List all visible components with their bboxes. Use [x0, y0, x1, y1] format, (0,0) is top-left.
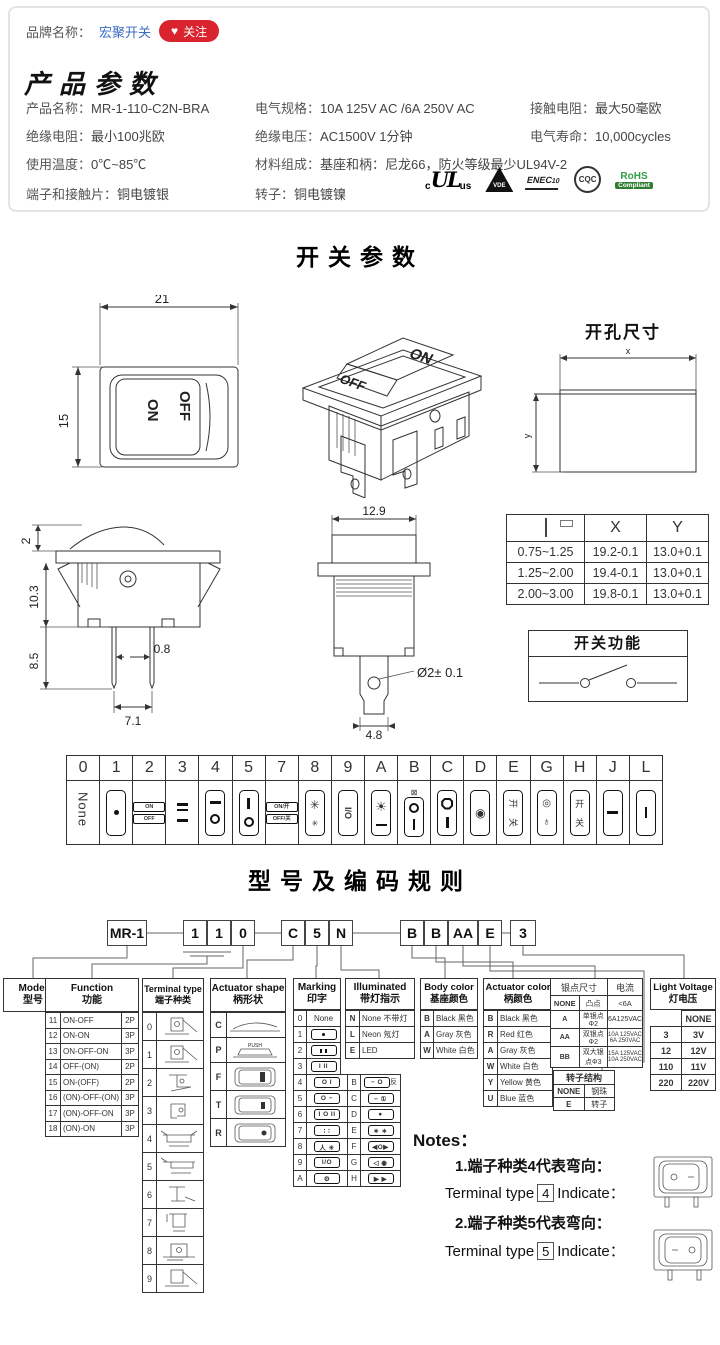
cell: NONE [682, 1011, 716, 1027]
cell: 7 [143, 1209, 157, 1237]
cell: G [348, 1155, 361, 1171]
svg-text:x: x [626, 346, 631, 356]
mark-dot-chip [307, 1027, 341, 1043]
cell: LED [360, 1043, 415, 1059]
cell: 3P [122, 1028, 139, 1044]
spec-label: 绝缘电压： [255, 129, 320, 144]
marking-bars [166, 781, 199, 845]
cell: 7 [294, 1123, 307, 1139]
cell: 220 [651, 1075, 682, 1091]
spec-label: 绝缘电阻： [26, 129, 91, 144]
spst-symbol [529, 657, 687, 701]
cell: White 白色 [498, 1059, 553, 1075]
cell: Y [647, 515, 709, 542]
cell: 4 [199, 756, 232, 781]
spec-value: 最小100兆欧 [91, 129, 165, 144]
function-header: Function功能 [45, 978, 139, 1012]
certification-logos: cULus VDE ENEC10 CQC RoHS Compliant [425, 166, 653, 193]
cell: L [346, 1027, 360, 1043]
code-light-voltage: 3 [510, 920, 536, 946]
terminal-type-5-switch-drawing [652, 1228, 716, 1284]
bulb-icon: ☀ [364, 781, 397, 845]
code-marking: 5 [305, 920, 329, 946]
mark-i-ii-chip: I II [307, 1059, 341, 1075]
cell: 0 [67, 756, 100, 781]
spec-label: 电气寿命： [530, 129, 595, 144]
cell: R [484, 1027, 498, 1043]
lamp-icon: ◎♁ [530, 781, 563, 845]
note-line-4: Terminal type5Indicate： [445, 1240, 625, 1261]
cell: ON-(OFF) [61, 1075, 122, 1091]
label: Terminal type [144, 984, 202, 995]
panel-thickness-icon [545, 518, 547, 537]
label: 基座颜色 [430, 994, 468, 1006]
marking-dot [100, 781, 133, 845]
cell: 110 [651, 1059, 682, 1075]
cell: 转子结构 [554, 1071, 615, 1085]
marking-dash [596, 781, 629, 845]
actuator-color-table: BBlack 黑色 RRed 红色 AGray 灰色 WWhite 白色 YYe… [483, 1010, 553, 1107]
cell: 凸点 [579, 996, 608, 1011]
fan-icon: ✳✳ [298, 781, 331, 845]
label: Function [71, 983, 113, 996]
marking-i-circle [232, 781, 265, 845]
cell: Blue 蓝色 [498, 1091, 553, 1107]
cell: A [294, 1171, 307, 1187]
label: Indicate： [557, 1185, 625, 1202]
svg-text:8.5: 8.5 [27, 652, 41, 669]
cell: A [421, 1027, 434, 1043]
cell: A [484, 1043, 498, 1059]
switch-function-box: 开关功能 [528, 630, 688, 702]
cell: H [348, 1171, 361, 1187]
marking-circle-bar: ⊠ [398, 781, 431, 845]
shape-r-icon [227, 1119, 286, 1147]
terminal-type-table: 0 1 2 3 4 5 6 7 8 9 [142, 1012, 204, 1293]
cell: 11 [46, 1013, 61, 1029]
cell: 转子 [584, 1098, 615, 1111]
cell: 19.4-0.1 [585, 563, 647, 584]
marking-code-table: 012345789ABCDEGHJL None ONOFF ON/开OFF/关 … [66, 755, 663, 845]
cell: 人 ✳ [307, 1139, 348, 1155]
spec-label: 产品名称： [26, 101, 91, 116]
terminal-type-4-switch-drawing [652, 1155, 716, 1211]
cell: E [554, 1098, 585, 1111]
light-voltage-table: NONE 33V 1212V 11011V 220220V [650, 1010, 716, 1091]
cell: 9 [331, 756, 364, 781]
cell: 19.8-0.1 [585, 584, 647, 605]
cell: O − [307, 1091, 348, 1107]
cell: P [211, 1038, 227, 1063]
cell: D [464, 756, 497, 781]
marking-io: I/O [331, 781, 364, 845]
marking-wide-table: 4O IB− O反 5O −C− ① 6I O IID● 7∶ ∶E∗ ∗ 8人… [293, 1074, 401, 1187]
cell: Gray 灰色 [498, 1043, 553, 1059]
marking-kai-guan: 开关 [563, 781, 596, 845]
cell: 220V [682, 1075, 716, 1091]
cell: 8 [294, 1139, 307, 1155]
cell: O I [307, 1075, 348, 1091]
cell: C [431, 756, 464, 781]
label: 功能 [82, 995, 102, 1008]
brand-label: 品牌名称： [26, 22, 91, 41]
cell: 9 [294, 1155, 307, 1171]
code-function-1: 1 [183, 920, 207, 946]
cell: B [484, 1011, 498, 1027]
svg-text:10.3: 10.3 [27, 585, 41, 609]
cell: 6A125VAC [608, 1011, 643, 1029]
cell: 3P [122, 1121, 139, 1137]
shape-rocker-icon [227, 1013, 286, 1038]
side-view-drawing: 2 10.3 8.5 0.8 7.1 [12, 505, 242, 730]
cell: 钢珠 [584, 1085, 615, 1098]
cell: 15 [46, 1075, 61, 1091]
cell: 0.75~1.25 [507, 542, 585, 563]
label: Model [19, 983, 48, 996]
body-color-header: Body color基座颜色 [420, 978, 478, 1010]
terminal-drawing-3 [157, 1097, 204, 1125]
cell: 13.0+0.1 [647, 584, 709, 605]
cell: (ON)-OFF-ON [61, 1106, 122, 1122]
cell: 电流 [608, 979, 643, 996]
svg-text:OFF: OFF [176, 391, 193, 421]
cell: B [348, 1075, 361, 1091]
cell: 5 [232, 756, 265, 781]
cell: 12 [651, 1043, 682, 1059]
label: 端子种类 [155, 995, 191, 1006]
cell: W [484, 1059, 498, 1075]
marking-on-kai: ON/开OFF/关 [265, 781, 298, 845]
spec-value: 0℃~85℃ [91, 157, 146, 172]
cell: E [348, 1123, 361, 1139]
spec-value: 铜电镀银 [117, 187, 169, 202]
cell: F [348, 1139, 361, 1155]
label: 灯电压 [669, 994, 698, 1006]
shape-push-icon: PUSH [227, 1038, 286, 1063]
cell: H [563, 756, 596, 781]
cell: N [346, 1011, 360, 1027]
cell: 11V [682, 1059, 716, 1075]
cell: − ① [361, 1091, 401, 1107]
cell: U [484, 1091, 498, 1107]
terminal-type-4-box: 4 [537, 1184, 554, 1202]
cell: 3P [122, 1090, 139, 1106]
marking-ibar [629, 781, 662, 845]
code-rotor: E [478, 920, 502, 946]
cell: 双银点Φ2 [579, 1029, 608, 1047]
svg-text:2: 2 [19, 537, 33, 544]
mark-onoff-chip [307, 1043, 341, 1059]
svg-text:15: 15 [58, 414, 71, 428]
label: 型号 [23, 995, 43, 1008]
cell: ∶ ∶ [307, 1123, 348, 1139]
label: Illuminated [354, 982, 407, 995]
cell: ● [361, 1107, 401, 1123]
label: Actuator shape [212, 983, 285, 996]
cell: 3V [682, 1027, 716, 1043]
switch-function-title: 开关功能 [529, 631, 687, 657]
cell: 3 [143, 1097, 157, 1125]
cell: (ON)-ON [61, 1121, 122, 1137]
code-silver: AA [448, 920, 478, 946]
isometric-view-drawing: ON OFF [285, 288, 500, 498]
cell: C [348, 1091, 361, 1107]
cell: 3P [122, 1044, 139, 1060]
cell: 5 [143, 1153, 157, 1181]
cell: 12 [46, 1028, 61, 1044]
marking-kai-guan-rot: 开关 [497, 781, 530, 845]
marking-small-table: 0None 1 2 3I II [293, 1010, 341, 1075]
cell: T [211, 1091, 227, 1119]
cell: J [596, 756, 629, 781]
shape-t-icon [227, 1091, 286, 1119]
label: Actuator color [486, 982, 551, 994]
cell: I O II [307, 1107, 348, 1123]
cell: 2P [122, 1059, 139, 1075]
cell: 2.00~3.00 [507, 584, 585, 605]
spec-label: 端子和接触片： [26, 187, 117, 202]
cell: 5 [294, 1091, 307, 1107]
actuator-shape-header: Actuator shape柄形状 [210, 978, 286, 1012]
cell: 1 [143, 1041, 157, 1069]
cell: ON-OFF-ON [61, 1044, 122, 1060]
label: Body color [424, 982, 474, 994]
spec-label: 电气规格： [255, 101, 320, 116]
cell: W [421, 1043, 434, 1059]
follow-button[interactable]: ♥关注 [159, 20, 219, 42]
vde-icon: VDE [485, 167, 513, 192]
cell: Black 黑色 [434, 1011, 478, 1027]
cell [651, 1011, 682, 1027]
cell: 4 [143, 1125, 157, 1153]
svg-text:21: 21 [155, 295, 169, 306]
code-illuminated: N [329, 920, 353, 946]
cell: E [497, 756, 530, 781]
note-line-1: 1.端子种类4代表弯向： [455, 1155, 611, 1176]
cell: A [551, 1011, 580, 1029]
actuator-color-header: Actuator color柄颜色 [483, 978, 553, 1010]
label: Terminal type [445, 1243, 534, 1260]
spec-label: 使用温度： [26, 157, 91, 172]
cell: 9 [143, 1265, 157, 1293]
cell: ◁ ◉ [361, 1155, 401, 1171]
cell: 1.25~2.00 [507, 563, 585, 584]
code-model: MR-1 [107, 920, 147, 946]
spec-value: 10A 125V AC /6A 250V AC [320, 101, 475, 116]
terminal-drawing-7 [157, 1209, 204, 1237]
terminal-drawing-2 [157, 1069, 204, 1097]
cell: 8 [143, 1237, 157, 1265]
terminal-drawing-5 [157, 1153, 204, 1181]
cell: Neon 氖灯 [360, 1027, 415, 1043]
shape-f-icon [227, 1063, 286, 1091]
cell: BB [551, 1047, 580, 1068]
cell: AA [551, 1029, 580, 1047]
silver-point-table: 银点尺寸 电流 NONE凸点<6A A单银点Φ26A125VAC AA双银点Φ2… [550, 978, 643, 1068]
cell: 12V [682, 1043, 716, 1059]
terminal-drawing-1 [157, 1041, 204, 1069]
code-function-2: 1 [207, 920, 231, 946]
cell: 2 [133, 756, 166, 781]
function-table: 11ON-OFF2P 12ON-ON3P 13ON-OFF-ON3P 14OFF… [45, 1012, 139, 1137]
label: Indicate： [557, 1243, 625, 1260]
cell: None [307, 1011, 341, 1027]
terminal-drawing-6 [157, 1181, 204, 1209]
code-terminal: 0 [231, 920, 255, 946]
spec-label: 转子： [255, 187, 294, 202]
cell: Red 红色 [498, 1027, 553, 1043]
brand-link[interactable]: 宏聚开关 [99, 22, 151, 41]
notes-title: Notes： [413, 1126, 477, 1151]
cell: 18 [46, 1121, 61, 1137]
actuator-shape-table: C PPUSH F T R [210, 1012, 286, 1147]
cell: NONE [554, 1085, 585, 1098]
spec-value: AC1500V 1分钟 [320, 129, 413, 144]
cell: E [346, 1043, 360, 1059]
cell: ▶ ▶ [361, 1171, 401, 1187]
cell: 13.0+0.1 [647, 563, 709, 584]
cell: 3 [651, 1027, 682, 1043]
svg-text:0.8: 0.8 [154, 642, 171, 656]
note-line-3: 2.端子种类5代表弯向： [455, 1212, 611, 1233]
rohs-icon: RoHS Compliant [615, 171, 653, 189]
cell: 14 [46, 1059, 61, 1075]
spec-value: 10,000cycles [595, 129, 671, 144]
illuminated-table: NNone 不带灯 LNeon 氖灯 ELED [345, 1010, 415, 1059]
cul-us-icon: cULus [425, 167, 471, 192]
cell: 6 [143, 1181, 157, 1209]
cell: Yellow 黄色 [498, 1075, 553, 1091]
cell: ◀O▶ [361, 1139, 401, 1155]
code-actuator-color: B [424, 920, 448, 946]
section-title-switch-params: 开关参数 [0, 238, 720, 272]
cell: Black 黑色 [498, 1011, 553, 1027]
cell: 13 [46, 1044, 61, 1060]
terminal-drawing-8 [157, 1237, 204, 1265]
light-voltage-header: Light Voltage灯电压 [650, 978, 716, 1010]
spec-value: MR-1-110-C2N-BRA [91, 101, 209, 116]
follow-label: 关注 [183, 23, 207, 40]
cell: 2 [294, 1043, 307, 1059]
svg-text:7.1: 7.1 [125, 714, 142, 728]
label: 带灯指示 [360, 994, 400, 1007]
rotor-table: 转子结构 NONE钢珠 E转子 [553, 1070, 615, 1111]
cell: ∗ ∗ [361, 1123, 401, 1139]
marking-header: Marking印字 [293, 978, 341, 1010]
svg-text:PUSH: PUSH [248, 1043, 262, 1049]
cell: Y [484, 1075, 498, 1091]
label: 印字 [307, 994, 327, 1007]
cell: 6 [294, 1107, 307, 1123]
label: Marking [298, 982, 336, 995]
svg-text:12.9: 12.9 [362, 505, 386, 518]
svg-text:4.8: 4.8 [366, 728, 383, 740]
svg-text:y: y [522, 433, 532, 438]
terminal-type-header: Terminal type端子种类 [142, 978, 204, 1012]
cell: 2P [122, 1013, 139, 1029]
spec-label: 材料组成： [255, 157, 320, 172]
cell: 4 [294, 1075, 307, 1091]
section-title-coding-rules: 型号及编码规则 [0, 862, 720, 896]
cell: None 不带灯 [360, 1011, 415, 1027]
cell: 银点尺寸 [551, 979, 608, 996]
marking-on-off: ONOFF [133, 781, 166, 845]
cell: A [364, 756, 397, 781]
cell: ON-OFF [61, 1013, 122, 1029]
label: 柄形状 [233, 995, 263, 1008]
terminal-drawing-0 [157, 1013, 204, 1041]
cell: 2P [122, 1075, 139, 1091]
spec-value: 铜电镀镍 [294, 187, 346, 202]
cell: Gray 灰色 [434, 1027, 478, 1043]
cell: <6A [608, 996, 643, 1011]
svg-text:OFF: OFF [337, 371, 369, 393]
cell: 17 [46, 1106, 61, 1122]
label: Light Voltage [653, 982, 712, 994]
label: 柄颜色 [504, 994, 533, 1006]
body-color-table: BBlack 黑色 AGray 灰色 WWhite 白色 [420, 1010, 478, 1059]
cell: C [211, 1013, 227, 1038]
marking-bar-circle [199, 781, 232, 845]
cell: 10A 125VAC 6A 250VAC [608, 1029, 643, 1047]
label: Terminal type [445, 1185, 534, 1202]
terminal-drawing-4 [157, 1125, 204, 1153]
cell: 1 [294, 1027, 307, 1043]
note-line-2: Terminal type4Indicate： [445, 1182, 625, 1203]
front-view2-drawing: 12.9 Ø2± 0.1 4.8 [292, 505, 497, 740]
product-page: 品牌名称： 宏聚开关 ♥关注 产品参数 产品名称：MR-1-110-C2N-BR… [0, 0, 720, 1345]
front-view-drawing: 21 15 OFF ON [58, 295, 253, 490]
cell: OFF-(ON) [61, 1059, 122, 1075]
cell: − O反 [361, 1075, 401, 1091]
marking-disc: ◉ [464, 781, 497, 845]
illuminated-header: Illuminated带灯指示 [345, 978, 415, 1010]
terminal-type-5-box: 5 [537, 1242, 554, 1260]
cell: B [421, 1011, 434, 1027]
cell: 7 [265, 756, 298, 781]
cell: 3P [122, 1106, 139, 1122]
cell: White 白色 [434, 1043, 478, 1059]
cell: ⚙ [307, 1171, 348, 1187]
stop-icon [431, 781, 464, 845]
cell: ON-ON [61, 1028, 122, 1044]
cell: 3 [294, 1059, 307, 1075]
cell: D [348, 1107, 361, 1123]
svg-text:ON: ON [144, 399, 161, 422]
cell: R [211, 1119, 227, 1147]
spec-value: 最大50毫欧 [595, 101, 661, 116]
cell: 2 [143, 1069, 157, 1097]
cell: 16 [46, 1090, 61, 1106]
cell: NONE [551, 996, 580, 1011]
cell: L [629, 756, 662, 781]
cell: F [211, 1063, 227, 1091]
code-actuator-shape: C [281, 920, 305, 946]
cell: 0 [143, 1013, 157, 1041]
product-info-card: 品牌名称： 宏聚开关 ♥关注 产品参数 产品名称：MR-1-110-C2N-BR… [8, 6, 710, 212]
cqc-icon: CQC [574, 166, 601, 193]
cell: 19.2-0.1 [585, 542, 647, 563]
cell: (ON)-OFF-(ON) [61, 1090, 122, 1106]
cell: 3 [166, 756, 199, 781]
cell: 单银点Φ2 [579, 1011, 608, 1029]
spec-label: 接触电阻： [530, 101, 595, 116]
panel-thickness-table: X Y 0.75~1.2519.2-0.113.0+0.1 1.25~2.001… [506, 514, 709, 605]
marking-none: None [67, 781, 100, 845]
svg-text:Ø2± 0.1: Ø2± 0.1 [417, 665, 463, 680]
cell: 8 [298, 756, 331, 781]
cell: I/O [307, 1155, 348, 1171]
